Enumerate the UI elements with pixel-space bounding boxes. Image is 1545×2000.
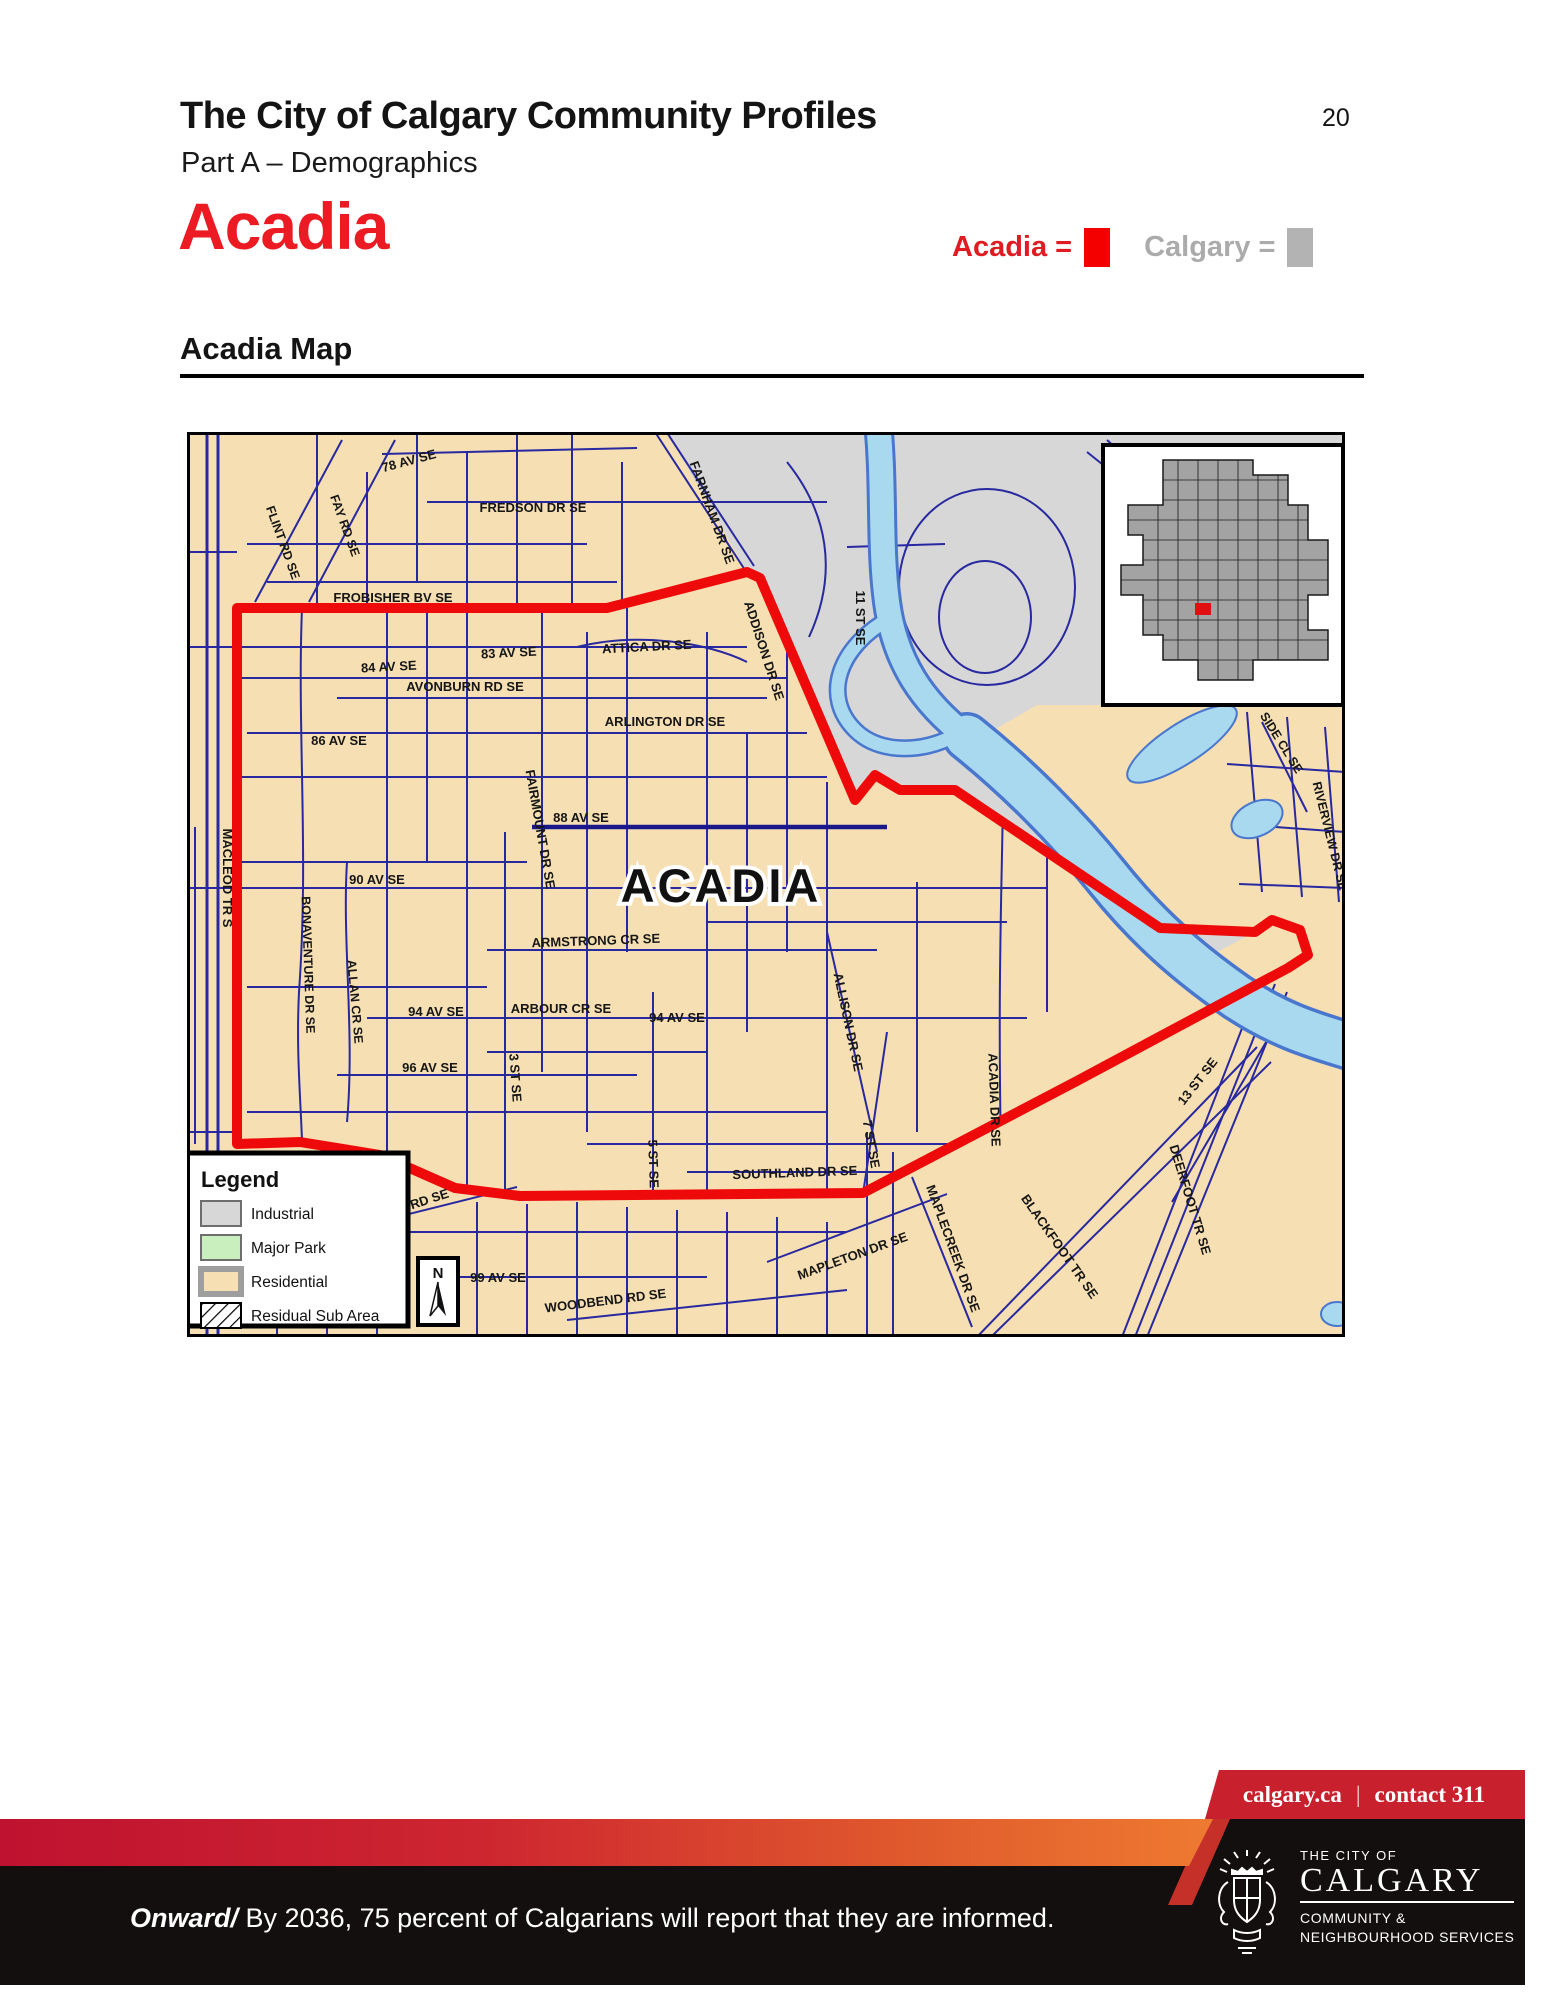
- north-arrow-label: N: [433, 1265, 444, 1282]
- document-page: The City of Calgary Community Profiles 2…: [0, 0, 1545, 2000]
- legend-swatch-industrial: [201, 1201, 241, 1226]
- footer-gradient-bar: [0, 1819, 1213, 1866]
- street-label-st5: 5 ST SE: [645, 1139, 662, 1188]
- calgary-color-swatch: [1287, 228, 1313, 267]
- acadia-color-swatch: [1084, 228, 1110, 267]
- street-label-arbour: ARBOUR CR SE: [511, 1001, 612, 1016]
- street-label-av83: 83 AV SE: [481, 644, 538, 662]
- calgary-key-label: Calgary =: [1144, 231, 1275, 264]
- legend-label-residual-sub-area: Residual Sub Area: [251, 1308, 380, 1325]
- logo-calgary: CALGARY: [1300, 1863, 1514, 1903]
- logo-neighbourhood-services: NEIGHBOURHOOD SERVICES: [1300, 1928, 1514, 1947]
- street-label-av84: 84 AV SE: [361, 658, 418, 676]
- street-label-av88: 88 AV SE: [553, 810, 609, 825]
- legend-swatch-major-park: [201, 1235, 241, 1260]
- legend-swatch-residential: [201, 1269, 241, 1294]
- street-label-av96: 96 AV SE: [402, 1060, 458, 1075]
- street-label-av94w: 94 AV SE: [408, 1004, 464, 1019]
- footer-contact-link[interactable]: contact 311: [1374, 1782, 1485, 1808]
- city-inset-map: [1103, 445, 1343, 705]
- onward-prefix: Onward/: [130, 1903, 238, 1933]
- inset-acadia-highlight: [1195, 603, 1211, 615]
- color-key: Acadia = Calgary =: [952, 228, 1313, 267]
- street-label-av86: 86 AV SE: [311, 733, 367, 748]
- city-of-calgary-logo: THE CITY OF CALGARY COMMUNITY & NEIGHBOU…: [1208, 1848, 1514, 1958]
- community-map-label: ACADIA: [621, 859, 822, 912]
- legend-label-industrial: Industrial: [251, 1206, 314, 1223]
- legend-label-major-park: Major Park: [251, 1240, 326, 1257]
- logo-the-city-of: THE CITY OF: [1300, 1848, 1514, 1863]
- legend-label-residential: Residential: [251, 1274, 328, 1291]
- logo-community: COMMUNITY &: [1300, 1909, 1514, 1928]
- footer-onward-statement: Onward/ By 2036, 75 percent of Calgarian…: [130, 1903, 1054, 1934]
- north-arrow: N: [418, 1258, 458, 1325]
- street-label-av99: 99 AV SE: [470, 1270, 526, 1285]
- street-label-macleod: MACLEOD TR S: [220, 829, 235, 928]
- document-title: The City of Calgary Community Profiles: [180, 95, 877, 138]
- street-label-st11: 11 ST SE: [853, 591, 868, 646]
- footer-contact-tab: calgary.ca | contact 311: [1205, 1770, 1525, 1819]
- page-number: 20: [1322, 104, 1350, 133]
- street-label-av90: 90 AV SE: [349, 872, 405, 887]
- map-legend: Legend Industrial Major Park Residential…: [187, 1153, 408, 1328]
- acadia-map-svg: ACADIA FLINT RD SE FAY RD SE 78 AV SE FR…: [187, 432, 1345, 1337]
- footer-divider: |: [1356, 1782, 1361, 1808]
- street-label-av94e: 94 AV SE: [649, 1010, 705, 1025]
- heading-rule: [180, 374, 1364, 378]
- acadia-key-label: Acadia =: [952, 231, 1072, 264]
- street-label-avonburn: AVONBURN RD SE: [406, 679, 524, 694]
- legend-swatch-residual-sub-area: [201, 1303, 241, 1328]
- community-title: Acadia: [178, 188, 388, 264]
- legend-title: Legend: [201, 1167, 279, 1192]
- street-label-fredson: FREDSON DR SE: [480, 500, 587, 515]
- map-section-heading: Acadia Map: [180, 331, 352, 367]
- acadia-map: ACADIA FLINT RD SE FAY RD SE 78 AV SE FR…: [187, 432, 1345, 1337]
- street-label-frobisher: FROBISHER BV SE: [333, 590, 453, 605]
- onward-text: By 2036, 75 percent of Calgarians will r…: [238, 1903, 1054, 1933]
- document-subtitle: Part A – Demographics: [181, 147, 478, 180]
- calgary-crest-icon: [1208, 1848, 1286, 1958]
- footer-site-link[interactable]: calgary.ca: [1243, 1782, 1342, 1808]
- street-label-arlington: ARLINGTON DR SE: [605, 714, 726, 729]
